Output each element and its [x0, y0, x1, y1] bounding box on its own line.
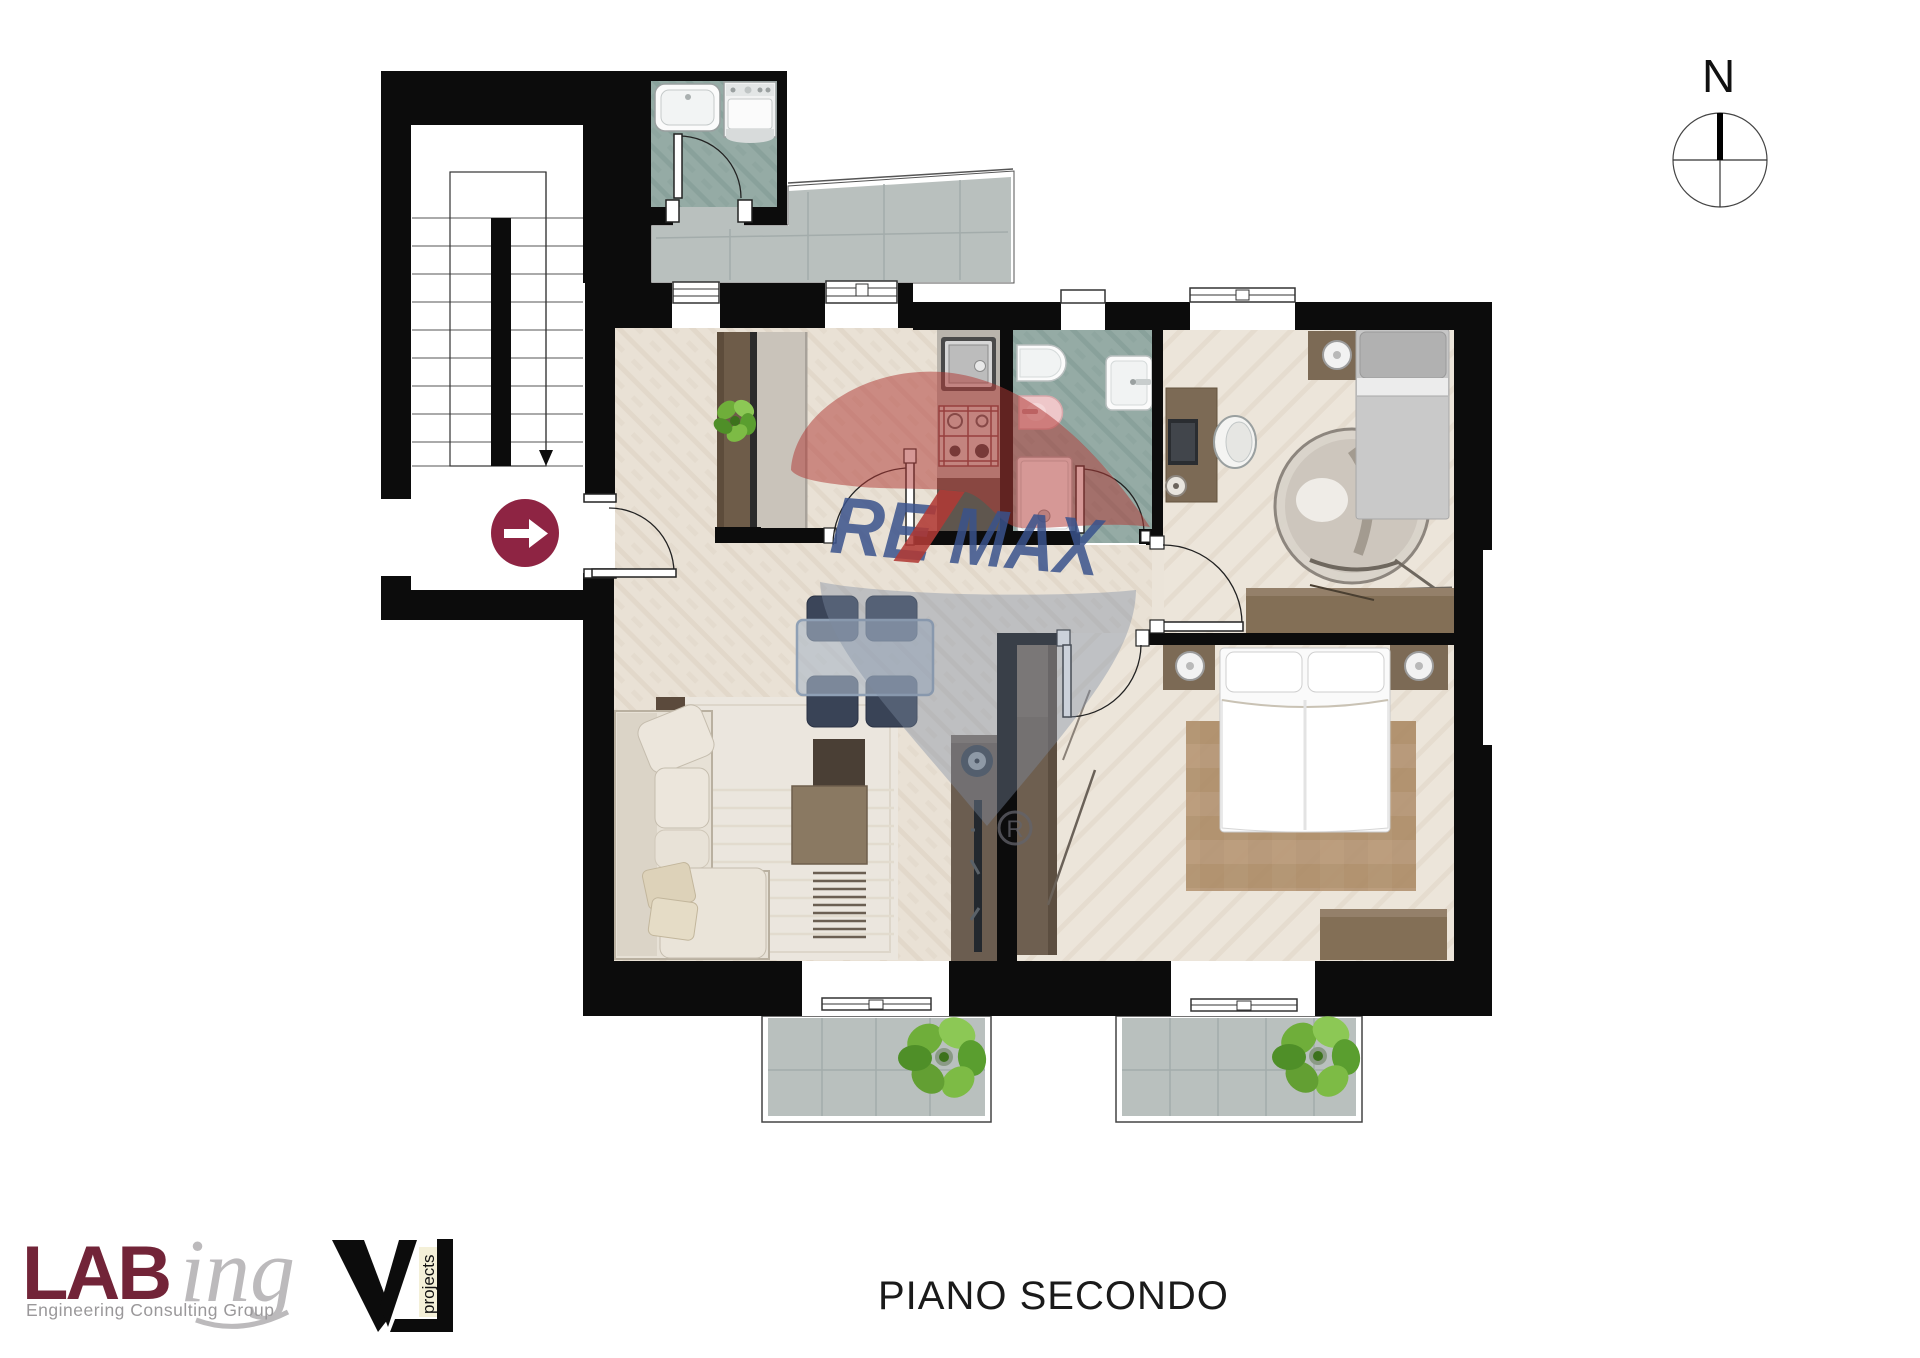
svg-text:Engineering Consulting Group: Engineering Consulting Group [26, 1300, 274, 1320]
svg-text:MAX: MAX [947, 491, 1108, 594]
svg-text:PIANO SECONDO: PIANO SECONDO [878, 1274, 1229, 1318]
svg-text:projects: projects [419, 1254, 438, 1314]
svg-text:N: N [1702, 50, 1735, 102]
svg-text:R: R [1006, 816, 1023, 843]
